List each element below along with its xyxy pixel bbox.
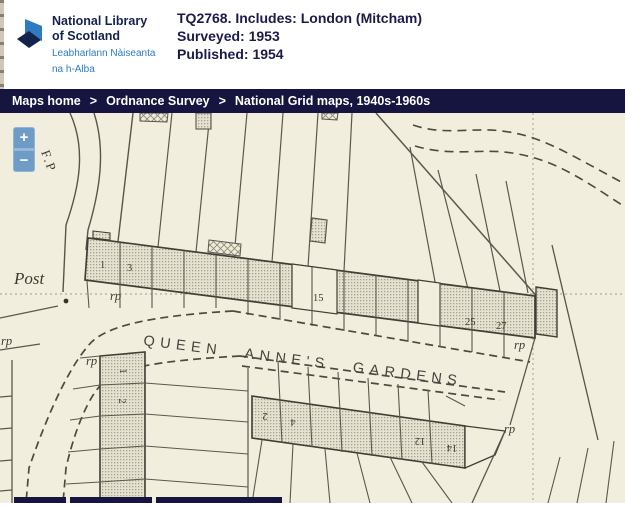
- footer-peek-segment: [14, 497, 66, 503]
- footer-peek-segment: [70, 497, 152, 503]
- footer-peek-segment: [156, 497, 282, 503]
- house-number: 1: [100, 260, 105, 271]
- os-map-tile: QUEEN ANNE'S GARDENS Post F.P rp rp rp r…: [0, 113, 625, 503]
- nls-logo[interactable]: National Library of Scotland Leabharlann…: [16, 14, 155, 76]
- boundary-post-dot: [64, 299, 69, 304]
- breadcrumb-separator: >: [219, 94, 226, 108]
- breadcrumb-ordnance-survey[interactable]: Ordnance Survey: [106, 94, 210, 108]
- house-number: 27: [496, 321, 507, 332]
- left-edge-artifact: [0, 0, 4, 89]
- page-header: National Library of Scotland Leabharlann…: [0, 0, 625, 89]
- house-number: 12: [415, 435, 426, 446]
- rp-label: rp: [110, 289, 121, 303]
- breadcrumb-national-grid-maps[interactable]: National Grid maps, 1940s-1960s: [235, 94, 430, 108]
- house-number: 25: [465, 317, 476, 328]
- rp-label: rp: [1, 334, 12, 348]
- post-label: Post: [13, 269, 46, 288]
- rp-label: rp: [86, 354, 97, 368]
- house-number: 3: [127, 263, 132, 274]
- zoom-controls: + −: [13, 127, 35, 172]
- breadcrumb-separator: >: [90, 94, 97, 108]
- published-line: Published: 1954: [177, 45, 422, 63]
- map-metadata: TQ2768. Includes: London (Mitcham) Surve…: [177, 9, 422, 63]
- nls-gaelic-line1: Leabharlann Nàiseanta: [52, 48, 155, 60]
- nls-gaelic-line2: na h-Alba: [52, 64, 155, 76]
- house-number: 2: [262, 410, 268, 421]
- house-number: 1: [117, 368, 128, 374]
- map-viewport[interactable]: + −: [0, 113, 625, 503]
- nls-name-line1: National Library: [52, 14, 155, 29]
- house-number: 15: [313, 293, 324, 304]
- nls-logo-icon: [16, 18, 46, 58]
- sheet-title: TQ2768. Includes: London (Mitcham): [177, 9, 422, 27]
- zoom-out-button[interactable]: −: [13, 150, 35, 172]
- rp-label: rp: [514, 338, 525, 352]
- house-number: 2: [116, 398, 127, 404]
- rp-label: rp: [504, 422, 515, 436]
- breadcrumb-maps-home[interactable]: Maps home: [12, 94, 81, 108]
- zoom-in-button[interactable]: +: [13, 127, 35, 150]
- surveyed-line: Surveyed: 1953: [177, 27, 422, 45]
- breadcrumb: Maps home > Ordnance Survey > National G…: [0, 89, 625, 113]
- house-number: 14: [446, 442, 458, 453]
- nls-name-line2: of Scotland: [52, 29, 155, 44]
